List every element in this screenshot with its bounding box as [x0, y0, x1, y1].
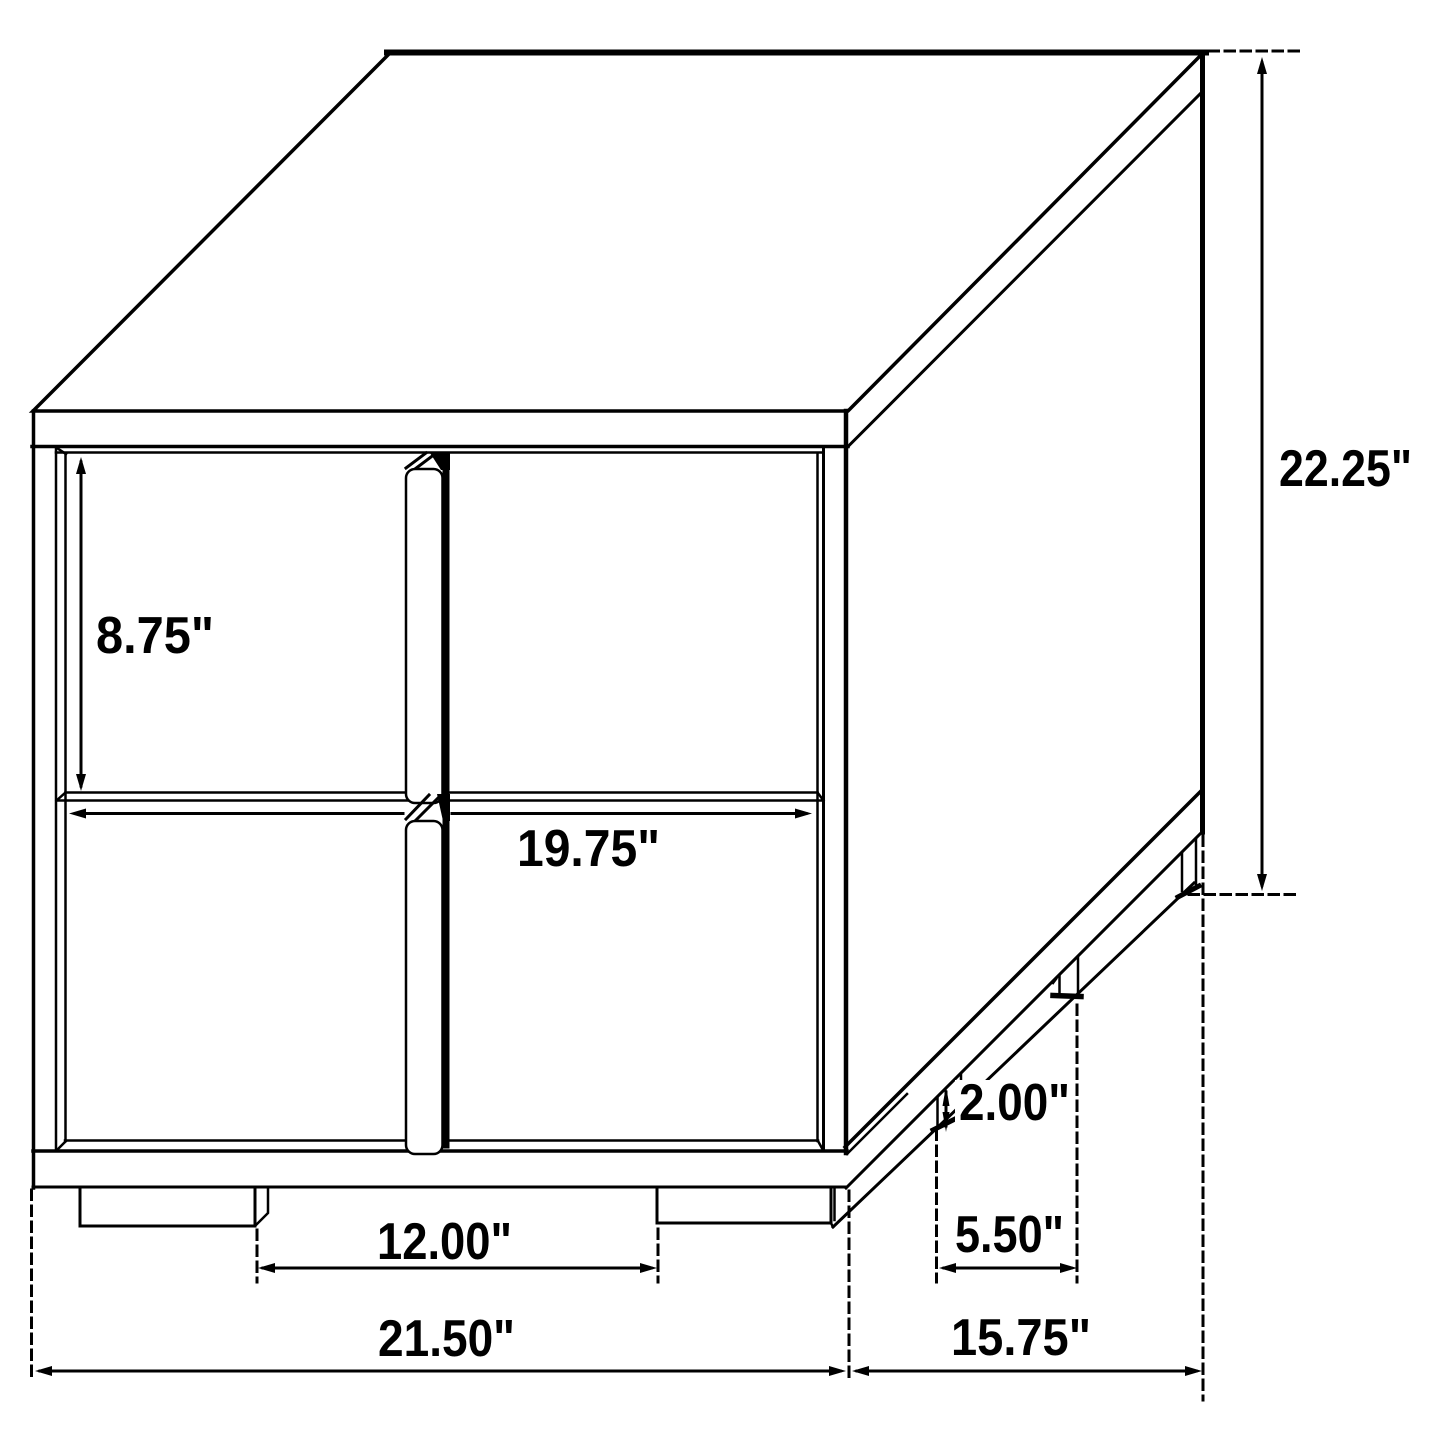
svg-text:21.50": 21.50"	[378, 1310, 515, 1368]
svg-text:22.25": 22.25"	[1279, 440, 1412, 498]
svg-text:12.00": 12.00"	[377, 1213, 512, 1271]
svg-text:15.75": 15.75"	[951, 1309, 1091, 1367]
svg-text:8.75": 8.75"	[96, 607, 214, 665]
svg-text:2.00": 2.00"	[959, 1074, 1070, 1132]
svg-text:5.50": 5.50"	[955, 1206, 1064, 1264]
svg-text:19.75": 19.75"	[517, 820, 660, 878]
